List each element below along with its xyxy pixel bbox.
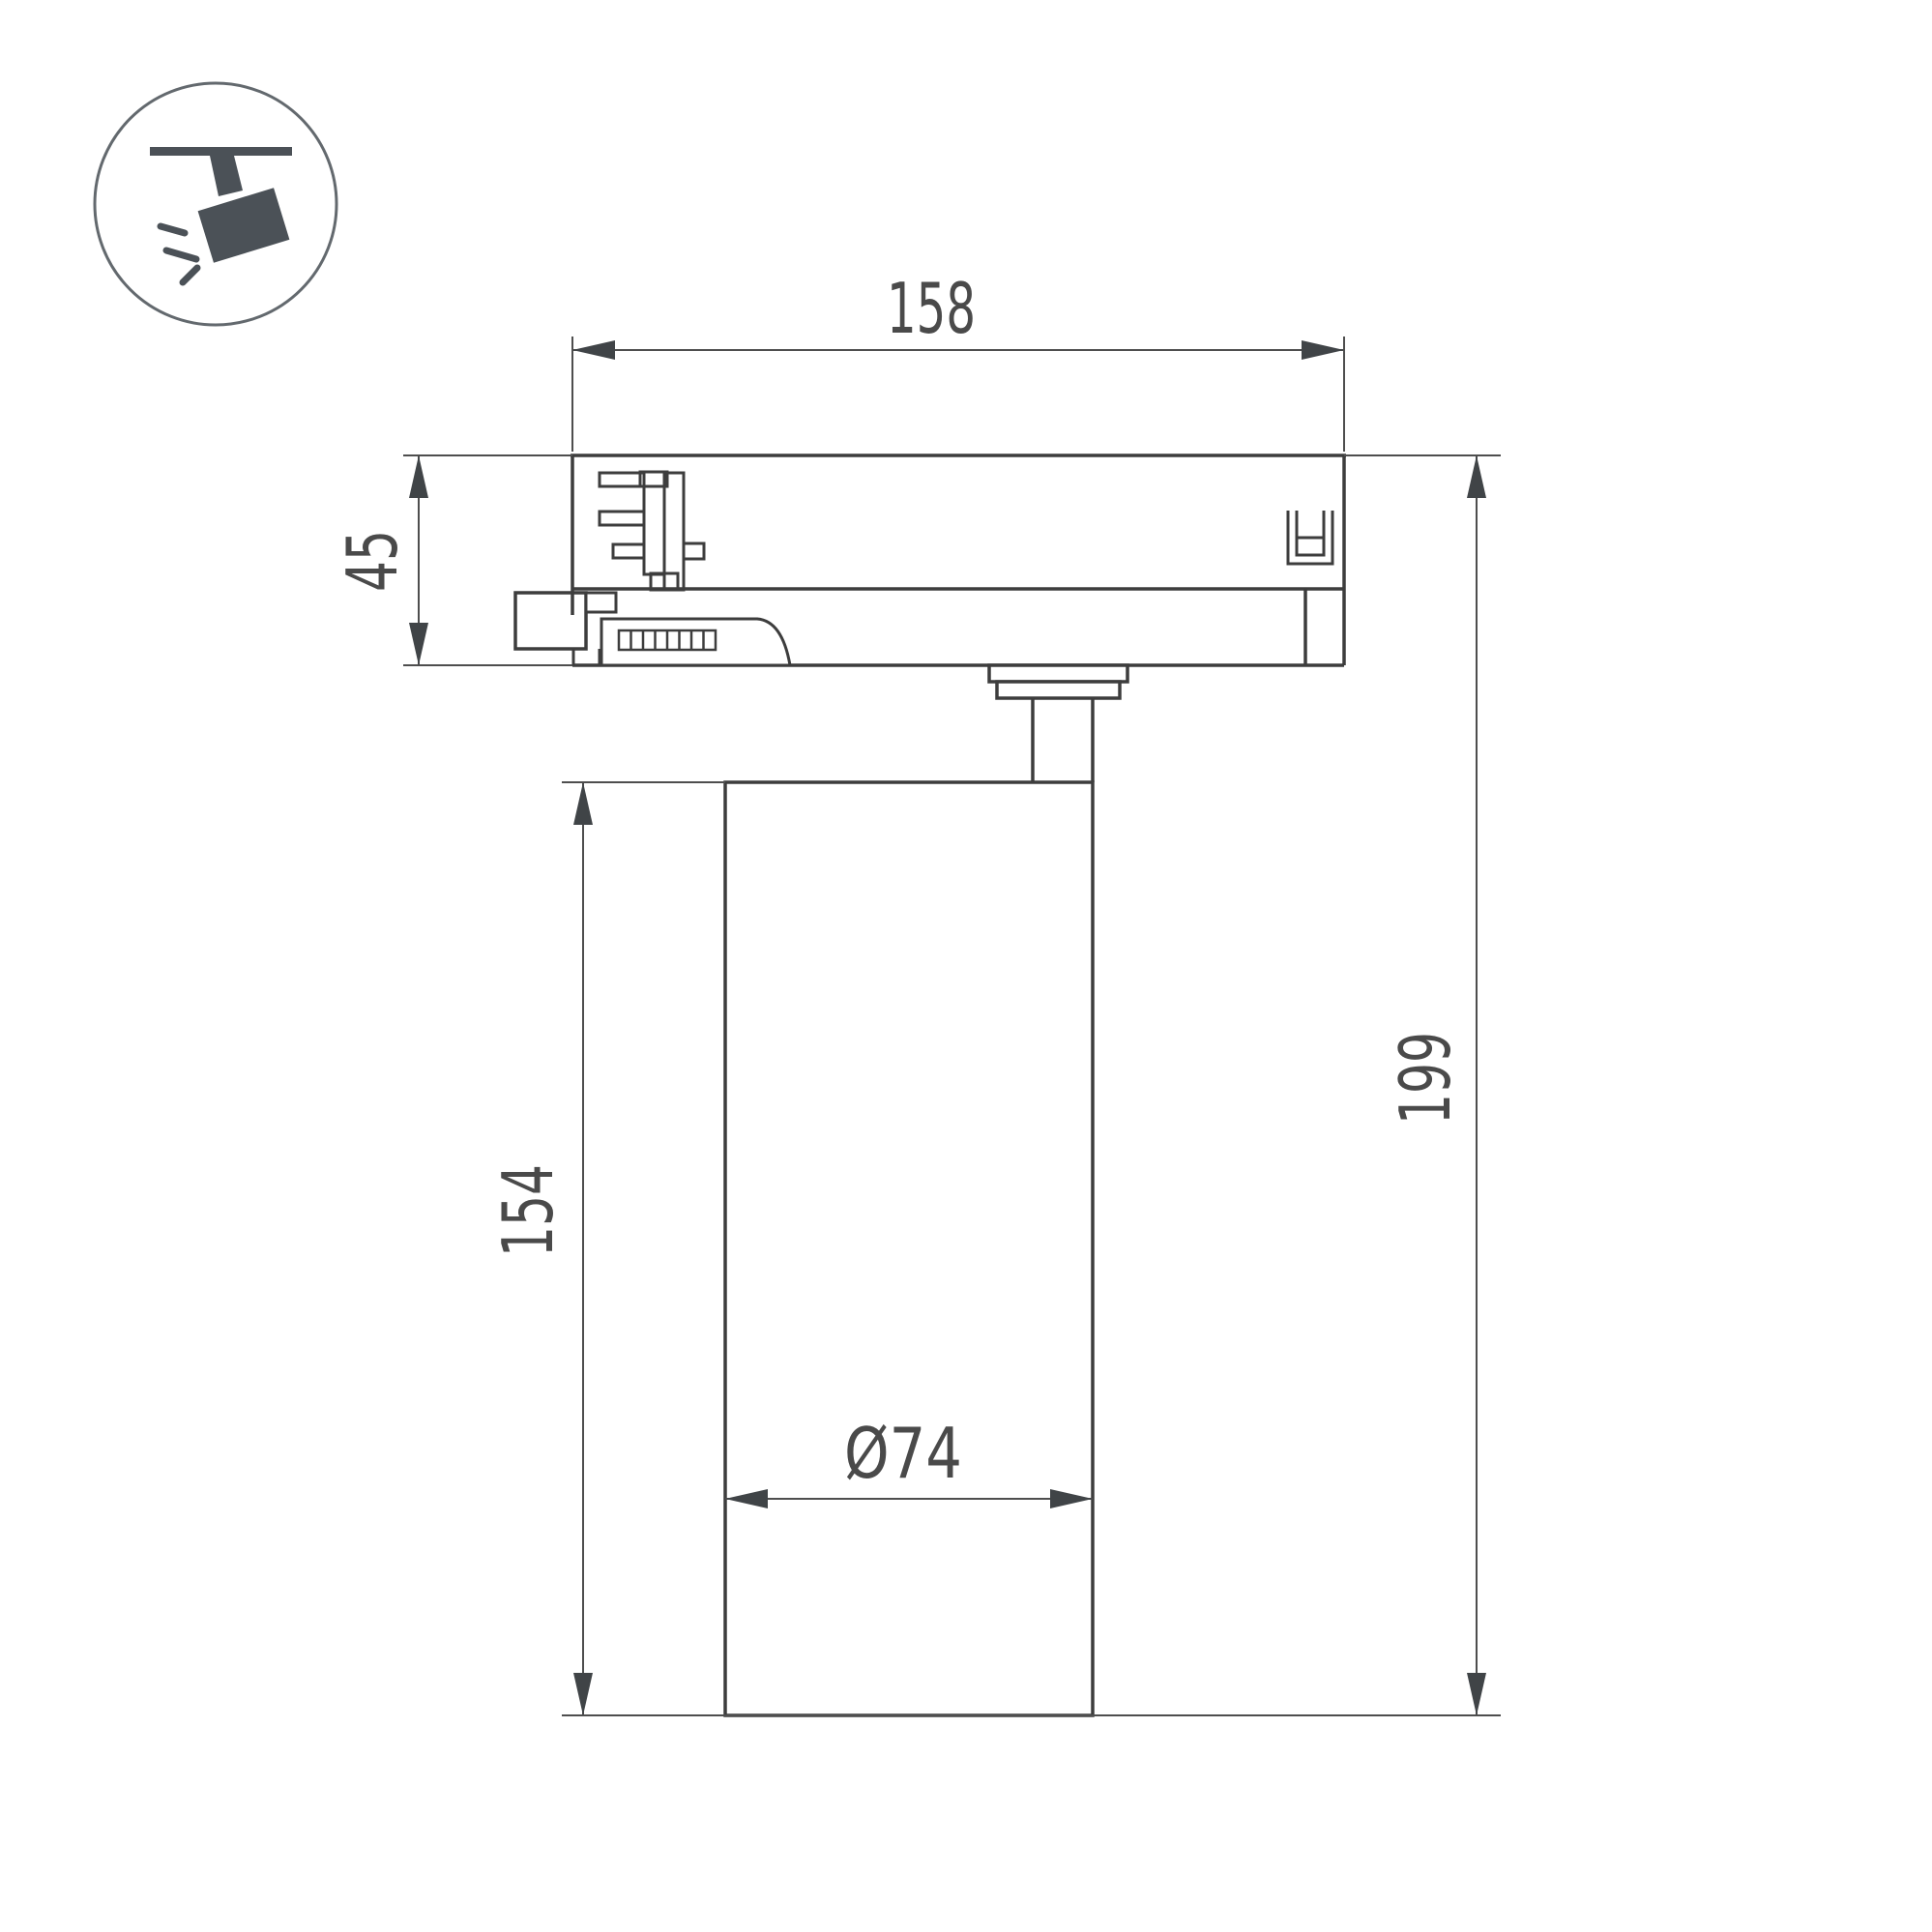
label-adapter-height: 45 xyxy=(332,530,413,592)
icon-track-bar xyxy=(150,147,292,156)
arrow-down xyxy=(573,1673,593,1715)
arrow-right xyxy=(1302,340,1344,360)
mount-joint xyxy=(989,665,1127,782)
contact-prong-2 xyxy=(600,512,644,525)
contact-prong-1 xyxy=(600,473,644,486)
arrow-up xyxy=(573,782,593,825)
drawing-canvas: 158 45 154 199 Ø74 xyxy=(0,0,1932,1932)
lamp-body xyxy=(725,782,1093,1715)
icon-ring xyxy=(95,83,337,325)
dim-154 xyxy=(562,782,725,1715)
label-diameter: Ø74 xyxy=(844,1413,962,1494)
track-spotlight-icon xyxy=(95,83,337,325)
arrow-down xyxy=(409,623,428,665)
dim-158 xyxy=(572,337,1344,452)
flange-tier-2 xyxy=(997,682,1120,698)
latch-step xyxy=(586,593,616,612)
contact-block xyxy=(600,472,704,590)
contact-pole xyxy=(644,486,664,574)
latch-box xyxy=(515,593,586,649)
flange-tier-1 xyxy=(989,665,1127,682)
label-total-height: 199 xyxy=(1385,1032,1466,1125)
track-adapter xyxy=(515,455,1346,665)
dimension-drawing: 158 45 154 199 Ø74 xyxy=(0,0,1932,1932)
arrow-down xyxy=(1467,1673,1486,1715)
arrow-up xyxy=(1467,455,1486,498)
arrow-left xyxy=(572,340,615,360)
contact-prong-right xyxy=(684,543,704,559)
label-body-height: 154 xyxy=(487,1164,569,1257)
right-clip xyxy=(1288,511,1332,564)
fixture-outline xyxy=(515,455,1346,1715)
contact-prong-3 xyxy=(613,544,644,558)
latch-grip-comb xyxy=(619,630,716,650)
arrow-up xyxy=(409,455,428,498)
label-width-top: 158 xyxy=(887,268,976,349)
